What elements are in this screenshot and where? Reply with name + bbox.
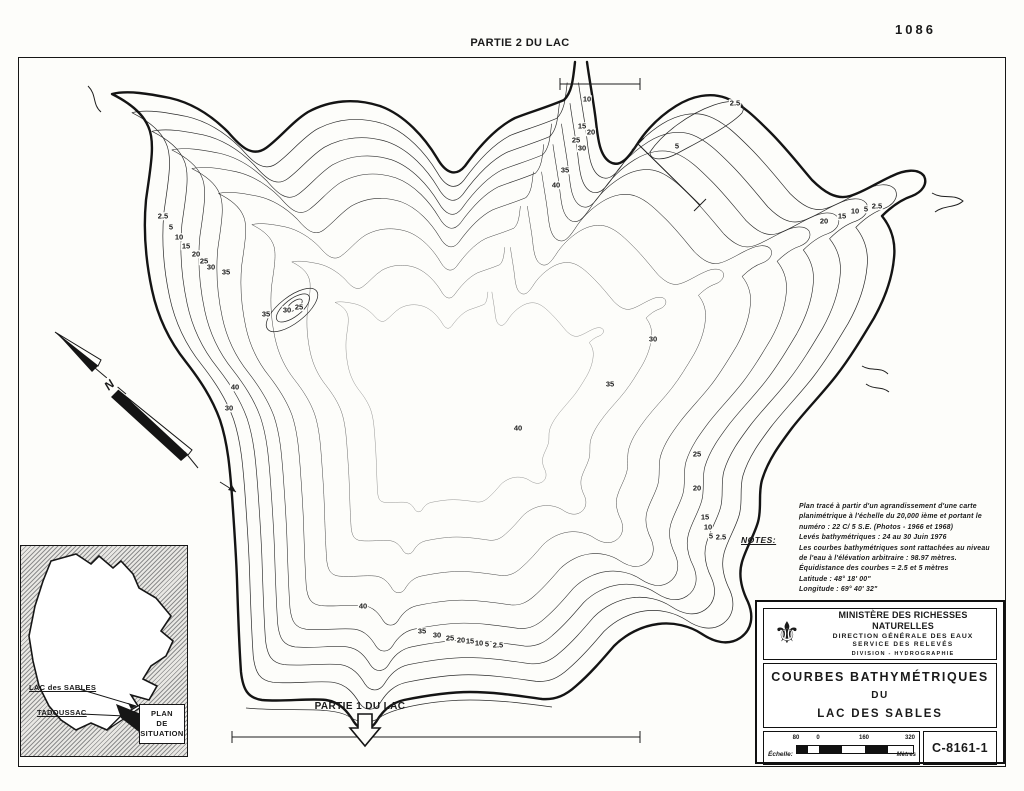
note-line: Levés bathymétriques : 24 au 30 Juin 197… [799,533,1003,543]
contour-depth-label: 35 [417,627,427,635]
contour-depth-label: 35 [261,310,271,318]
contour-depth-label: 2.5 [492,641,504,649]
contour-depth-label: 35 [605,380,615,388]
contour-depth-label: 2.5 [715,533,727,541]
map-title: COURBES BATHYMÉTRIQUES DU LAC DES SABLES [763,663,997,728]
notes-lines: Plan tracé à partir d'un agrandissement … [799,502,1003,596]
division-name: DIVISION - HYDROGRAPHIE [810,650,996,658]
inset-town-label: TADOUSSAC [37,708,87,717]
contour-depth-label: 10 [703,523,713,531]
map-title-line3: LAC DES SABLES [817,705,943,724]
situation-line-3: SITUATION [140,729,183,739]
note-line: Longitude : 69° 40' 32" [799,585,1003,595]
scale-unit: Mètres [897,752,916,758]
contour-depth-label: 15 [700,513,710,521]
contour-depth-label: 10 [582,95,592,103]
note-line: Équidistance des courbes = 2.5 et 5 mètr… [799,564,1003,574]
scale-label: Échelle: [768,751,793,758]
service-name: SERVICE DES RELEVÉS [810,641,996,650]
contour-depth-label: 35 [560,166,570,174]
contour-depth-label: 30 [206,263,216,271]
contour-depth-label: 25 [692,450,702,458]
note-line: numéro : 22 C/ 5 S.E. (Photos - 1966 et … [799,523,1003,533]
contour-depth-label: 20 [692,484,702,492]
contour-depth-label: 20 [586,128,596,136]
contour-depth-label: 30 [282,306,292,314]
contour-depth-label: 15 [181,242,191,250]
contour-depth-label: 5 [674,142,680,150]
map-title-line2: DU [871,687,888,705]
inset-lake-label: LAC des SABLES [29,683,96,692]
situation-line-1: PLAN [151,709,173,719]
note-line: Latitude : 48° 18' 00" [799,575,1003,585]
scale-tick-label: 0 [816,735,819,741]
notes-block: NOTES: Plan tracé à partir d'un agrandis… [735,502,1003,596]
notes-heading: NOTES: [741,535,776,545]
scale-tick-label: 160 [859,735,869,741]
contour-depth-label: 25 [294,303,304,311]
title-block-header: ⚜ MINISTÈRE DES RICHESSES NATURELLES DIR… [763,608,997,660]
partie1-label: PARTIE 1 DU LAC [305,701,415,712]
contour-depth-label: 30 [577,144,587,152]
contour-depth-label: 15 [837,212,847,220]
title-block: ⚜ MINISTÈRE DES RICHESSES NATURELLES DIR… [755,600,1005,764]
situation-line-2: DE [156,719,167,729]
contour-depth-label: 5 [863,205,869,213]
note-line: planimétrique à l'échelle du 20,000 ième… [799,512,1003,522]
contour-depth-label: 30 [648,335,658,343]
contour-depth-label: 40 [230,383,240,391]
contour-depth-label: 30 [224,404,234,412]
note-line: de l'eau à l'élévation arbitraire : 98.9… [799,554,1003,564]
contour-depth-label: 30 [432,631,442,639]
contour-depth-label: 40 [551,181,561,189]
drawing-number: C-8161-1 [923,731,997,765]
situation-inset-map: LAC des SABLES TADOUSSAC PLAN DE SITUATI… [20,545,188,757]
scale-bar-cell: Échelle: 800160320 Mètres [763,731,920,765]
contour-depth-label: 10 [474,639,484,647]
contour-depth-label: 40 [513,424,523,432]
contour-depth-label: 5 [484,640,490,648]
contour-depth-label: 35 [221,268,231,276]
contour-depth-label: 5 [168,223,174,231]
note-line: Les courbes bathymétriques sont rattaché… [799,544,1003,554]
contour-depth-label: 20 [819,217,829,225]
contour-depth-label: 2.5 [729,99,741,107]
contour-depth-label: 2.5 [157,212,169,220]
contour-depth-label: 5 [708,532,714,540]
direction-name: DIRECTION GÉNÉRALE DES EAUX [810,632,996,641]
ministry-name: MINISTÈRE DES RICHESSES NATURELLES [810,610,996,632]
contour-depth-label: 2.5 [871,202,883,210]
note-line: Plan tracé à partir d'un agrandissement … [799,502,1003,512]
scale-tick-label: 320 [905,735,915,741]
contour-depth-label: 10 [174,233,184,241]
fleur-de-lis-icon: ⚜ [764,619,810,649]
map-sheet: { "page": { "top_title": "PARTIE 2 DU LA… [0,0,1024,791]
map-title-line1: COURBES BATHYMÉTRIQUES [771,668,989,687]
contour-depth-label: 10 [850,207,860,215]
plan-de-situation-box: PLAN DE SITUATION [139,704,185,744]
scale-tick-label: 80 [793,735,800,741]
contour-depth-label: 40 [358,602,368,610]
contour-depth-label: 25 [445,634,455,642]
